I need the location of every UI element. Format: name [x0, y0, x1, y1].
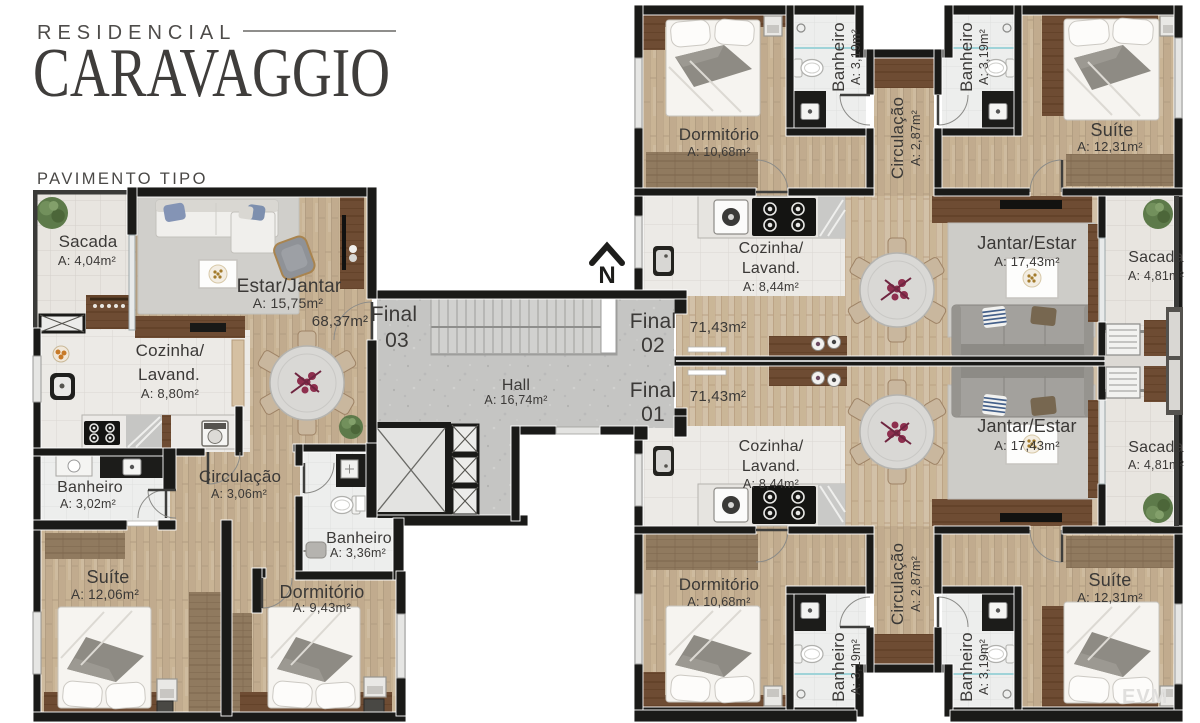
- svg-text:Final: Final: [371, 303, 418, 326]
- svg-text:CARAVAGGIO: CARAVAGGIO: [33, 35, 390, 112]
- svg-text:A: 8,44m²: A: 8,44m²: [743, 477, 799, 491]
- svg-text:A: 4,81m²: A: 4,81m²: [1128, 269, 1184, 283]
- svg-text:Banheiro: Banheiro: [829, 632, 848, 702]
- svg-text:Sacada: Sacada: [1128, 249, 1183, 266]
- svg-text:A: 12,31m²: A: 12,31m²: [1077, 139, 1143, 154]
- svg-text:A: 15,75m²: A: 15,75m²: [253, 295, 324, 311]
- svg-text:A: 10,68m²: A: 10,68m²: [687, 145, 750, 159]
- svg-text:Dormitório: Dormitório: [679, 125, 759, 144]
- svg-text:Cozinha/: Cozinha/: [739, 438, 804, 455]
- svg-text:A: 4,04m²: A: 4,04m²: [58, 253, 117, 268]
- svg-text:Dormitório: Dormitório: [279, 582, 364, 602]
- svg-text:Final: Final: [630, 379, 677, 402]
- svg-text:A: 4,81m²: A: 4,81m²: [1128, 458, 1184, 472]
- svg-text:Lavand.: Lavand.: [138, 365, 200, 384]
- svg-text:A: 3,36m²: A: 3,36m²: [330, 546, 386, 560]
- svg-text:A: 3,06m²: A: 3,06m²: [211, 487, 267, 501]
- svg-text:Suíte: Suíte: [1090, 120, 1133, 140]
- svg-text:A: 12,31m²: A: 12,31m²: [1077, 590, 1143, 605]
- svg-text:Suíte: Suíte: [86, 567, 129, 587]
- svg-text:01: 01: [641, 403, 665, 426]
- svg-text:Final: Final: [630, 310, 677, 333]
- svg-text:Banheiro: Banheiro: [957, 632, 976, 702]
- svg-text:A: 3,19m²: A: 3,19m²: [849, 639, 863, 695]
- svg-text:PAVIMENTO TIPO: PAVIMENTO TIPO: [37, 170, 208, 188]
- svg-text:Dormitório: Dormitório: [679, 575, 759, 594]
- svg-text:A: 3,19m²: A: 3,19m²: [977, 29, 991, 85]
- svg-text:Lavand.: Lavand.: [742, 260, 800, 277]
- svg-text:03: 03: [385, 329, 409, 352]
- svg-text:A: 3,02m²: A: 3,02m²: [60, 497, 116, 511]
- svg-text:Banheiro: Banheiro: [957, 22, 976, 92]
- svg-text:A: 10,68m²: A: 10,68m²: [687, 595, 750, 609]
- svg-text:Hall: Hall: [502, 377, 530, 394]
- svg-text:Jantar/Estar: Jantar/Estar: [977, 416, 1076, 436]
- svg-text:A: 9,43m²: A: 9,43m²: [293, 600, 352, 615]
- svg-text:Lavand.: Lavand.: [742, 458, 800, 475]
- svg-text:EVM: EVM: [1122, 686, 1168, 708]
- svg-text:A: 2,87m²: A: 2,87m²: [909, 556, 923, 612]
- svg-text:A: 8,44m²: A: 8,44m²: [743, 280, 799, 294]
- svg-text:A: 2,87m²: A: 2,87m²: [909, 110, 923, 166]
- svg-text:Banheiro: Banheiro: [57, 479, 123, 496]
- svg-text:A: 12,06m²: A: 12,06m²: [71, 587, 139, 602]
- svg-text:A: 3,19m²: A: 3,19m²: [849, 29, 863, 85]
- svg-text:Cozinha/: Cozinha/: [739, 240, 804, 257]
- svg-text:68,37m²: 68,37m²: [312, 313, 368, 330]
- svg-text:Banheiro: Banheiro: [326, 530, 392, 547]
- svg-text:A: 17,43m²: A: 17,43m²: [994, 254, 1060, 269]
- svg-text:Sacada: Sacada: [1128, 439, 1183, 456]
- svg-text:A: 17,43m²: A: 17,43m²: [994, 438, 1060, 453]
- svg-text:02: 02: [641, 334, 665, 357]
- svg-text:71,43m²: 71,43m²: [690, 319, 746, 336]
- svg-text:Suíte: Suíte: [1088, 570, 1131, 590]
- svg-text:Estar/Jantar: Estar/Jantar: [237, 276, 342, 297]
- svg-text:Circulação: Circulação: [888, 543, 907, 625]
- svg-text:Jantar/Estar: Jantar/Estar: [977, 233, 1076, 253]
- svg-text:A: 8,80m²: A: 8,80m²: [141, 386, 200, 401]
- svg-text:Circulação: Circulação: [888, 97, 907, 179]
- svg-text:71,43m²: 71,43m²: [690, 388, 746, 405]
- svg-text:Banheiro: Banheiro: [829, 22, 848, 92]
- svg-text:Cozinha/: Cozinha/: [136, 341, 205, 360]
- svg-text:A: 16,74m²: A: 16,74m²: [484, 393, 547, 407]
- svg-text:N: N: [598, 262, 615, 289]
- svg-text:A: 3,19m²: A: 3,19m²: [977, 639, 991, 695]
- svg-text:Sacada: Sacada: [59, 232, 118, 251]
- svg-text:Circulação: Circulação: [199, 467, 281, 486]
